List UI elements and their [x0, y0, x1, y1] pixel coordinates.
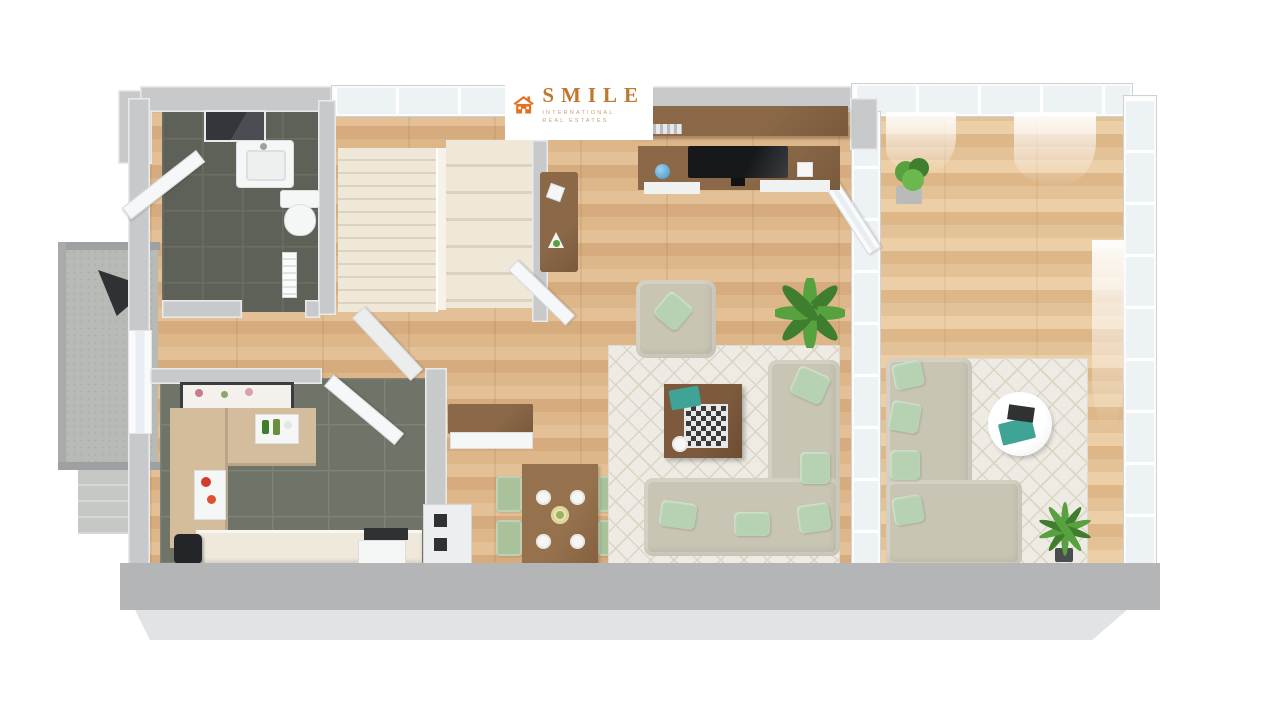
sofa-pillow-2 [800, 452, 830, 484]
palm-plant [1032, 496, 1098, 562]
wall-right-windows [1124, 96, 1156, 569]
entry-door [423, 504, 472, 567]
potted-plant-living [775, 278, 845, 348]
tv-upper-shelf [630, 106, 848, 136]
balcony-door [128, 330, 152, 434]
floor-plan-render: SMILE INTERNATIONAL REAL ESTATES [0, 0, 1280, 720]
brand-text-block: SMILE INTERNATIONAL REAL ESTATES [542, 85, 645, 126]
sunroom-pillow-3 [890, 450, 920, 480]
television [688, 146, 788, 178]
sofa-pillow-3 [796, 502, 832, 534]
hall-cabinet-front [450, 432, 533, 449]
brand-tagline-line2: REAL ESTATES [542, 118, 608, 124]
picture-flower-1 [195, 389, 203, 397]
dining-chair-2 [496, 520, 522, 556]
wall-bathroom-right [318, 100, 336, 315]
potted-plant-sunroom [890, 154, 936, 198]
dish-on-table [672, 436, 688, 452]
hall-cabinet-top [448, 404, 533, 434]
cooktop [364, 528, 408, 540]
toilet-bowl [284, 204, 316, 236]
bowl [284, 421, 292, 429]
mirror [204, 110, 266, 142]
brand-name: SMILE [542, 85, 645, 106]
dinner-plate-1 [536, 490, 551, 505]
sink-basin [246, 150, 286, 181]
dinner-plate-4 [570, 534, 585, 549]
faucet [260, 143, 267, 150]
fruit-tray [194, 470, 226, 520]
dinner-plate-3 [536, 534, 551, 549]
entry-door-pane-1 [434, 514, 447, 527]
curtain-right [1092, 240, 1124, 430]
stair-window [332, 86, 534, 116]
kitchen-stool [174, 534, 202, 564]
dining-chair-1 [496, 476, 522, 512]
stair-flight-right [446, 140, 532, 308]
wall-bathroom-bottom-b [305, 300, 320, 318]
sofa-pillow-5 [734, 512, 770, 536]
partition-wall-stub [850, 98, 878, 150]
globe [655, 164, 670, 179]
stair-flight-left [338, 148, 438, 312]
table-centerpiece [551, 506, 569, 524]
tv-drawer-1 [644, 182, 700, 194]
partition-glass-wall [852, 112, 880, 569]
fruit-1 [201, 477, 211, 487]
front-wall-top [120, 563, 1160, 610]
dinner-plate-2 [570, 490, 585, 505]
bottle-2 [273, 419, 280, 435]
bottle-1 [262, 420, 269, 434]
radiator [282, 252, 297, 298]
brand-tagline-line1: INTERNATIONAL [542, 110, 614, 116]
sofa-pillow-4 [658, 500, 697, 531]
house-icon [513, 86, 534, 124]
sunroom-pillow-2 [888, 400, 923, 435]
front-wall-face [135, 610, 1127, 640]
picture-flower-2 [221, 391, 228, 398]
photo-frame [797, 162, 813, 177]
stair-spine [438, 148, 446, 310]
centerpiece-greens [556, 511, 564, 519]
fruit-2 [207, 495, 216, 504]
wall-kitchen-right [425, 368, 447, 512]
brand-logo: SMILE INTERNATIONAL REAL ESTATES [505, 70, 653, 140]
picture-flower-3 [245, 388, 253, 396]
sunroom-pillow-4 [891, 494, 925, 527]
balcony-railing-left [58, 242, 66, 470]
tv-stand [731, 178, 745, 186]
tv-drawer-2 [760, 180, 830, 192]
chess-board [684, 404, 728, 448]
console-plant [553, 240, 560, 247]
bottle-tray [255, 414, 299, 444]
wall-bathroom-bottom-a [162, 300, 242, 318]
wall-top-bathroom [140, 86, 332, 112]
brand-tagline: INTERNATIONAL REAL ESTATES [542, 109, 645, 126]
entry-door-pane-2 [434, 538, 447, 551]
